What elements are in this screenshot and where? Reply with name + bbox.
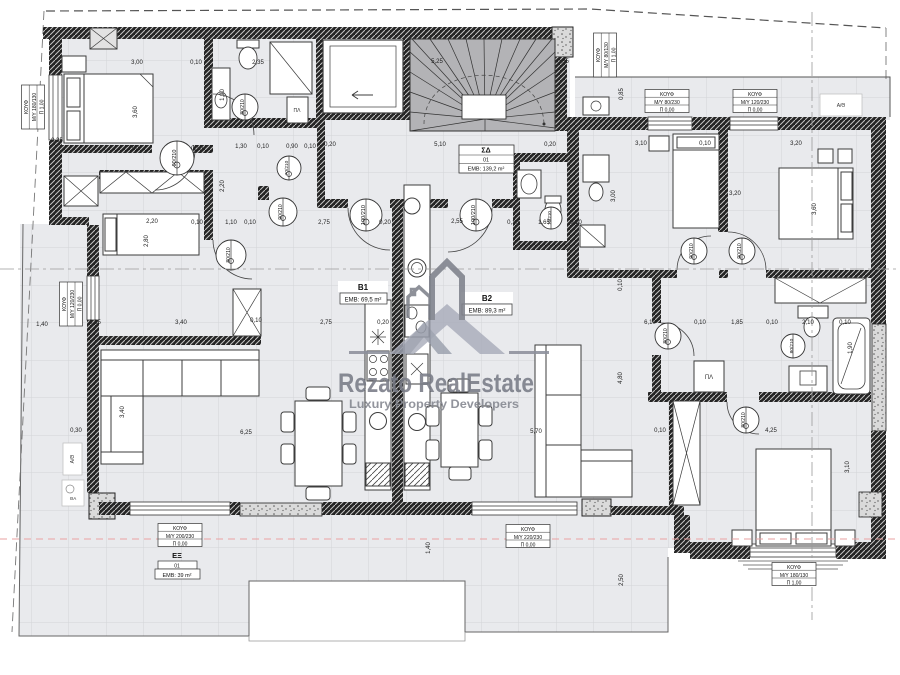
svg-text:ΣΔ: ΣΔ — [481, 148, 490, 155]
svg-text:01: 01 — [483, 158, 489, 164]
svg-text:Π 0,00: Π 0,00 — [748, 108, 763, 114]
svg-text:6,10: 6,10 — [644, 320, 656, 326]
svg-text:0,30: 0,30 — [70, 428, 82, 434]
svg-text:3,40: 3,40 — [175, 320, 187, 326]
svg-text:ΠΛ: ΠΛ — [705, 375, 713, 381]
svg-text:0,10: 0,10 — [694, 320, 706, 326]
svg-text:EMB: 69,5 m²: EMB: 69,5 m² — [345, 298, 382, 304]
svg-text:Π 1,00: Π 1,00 — [787, 581, 802, 587]
svg-text:0,10: 0,10 — [507, 220, 519, 226]
svg-text:Luxury Property Developers: Luxury Property Developers — [349, 397, 519, 411]
svg-text:2,35: 2,35 — [252, 60, 264, 66]
svg-text:2,20: 2,20 — [220, 180, 226, 192]
svg-text:0,10: 0,10 — [654, 428, 666, 434]
svg-text:0,10: 0,10 — [250, 318, 262, 324]
svg-text:ΠΛ: ΠΛ — [294, 108, 302, 114]
svg-text:70/210: 70/210 — [284, 160, 290, 175]
svg-text:3,00: 3,00 — [127, 146, 139, 152]
svg-text:80/210: 80/210 — [741, 412, 747, 428]
svg-text:1,85: 1,85 — [731, 320, 743, 326]
svg-text:0,35: 0,35 — [557, 59, 569, 65]
svg-text:Rezato RealEstate: Rezato RealEstate — [338, 368, 534, 398]
svg-text:2,50: 2,50 — [619, 574, 625, 586]
svg-text:3,20: 3,20 — [790, 141, 802, 147]
svg-text:Π 1,00: Π 1,00 — [612, 47, 618, 62]
svg-text:100/210: 100/210 — [471, 205, 477, 225]
svg-text:0,10: 0,10 — [190, 60, 202, 66]
svg-text:0,20: 0,20 — [544, 142, 556, 148]
svg-text:80/210: 80/210 — [240, 99, 246, 115]
svg-text:0,10: 0,10 — [699, 141, 711, 147]
svg-text:6,25: 6,25 — [240, 430, 252, 436]
svg-text:2,55: 2,55 — [451, 219, 463, 225]
svg-text:1,90: 1,90 — [220, 89, 226, 101]
svg-text:B1: B1 — [358, 283, 369, 292]
svg-text:5,70: 5,70 — [530, 429, 542, 435]
svg-text:5,25: 5,25 — [431, 59, 443, 65]
svg-text:1,40: 1,40 — [36, 322, 48, 328]
svg-text:1,90: 1,90 — [848, 342, 854, 354]
svg-text:EMB: 39 m²: EMB: 39 m² — [162, 573, 191, 579]
svg-text:1,30: 1,30 — [235, 144, 247, 150]
svg-text:0,10: 0,10 — [839, 320, 851, 326]
svg-text:100/210: 100/210 — [361, 205, 367, 225]
svg-text:EMB: 139,2 m²: EMB: 139,2 m² — [468, 167, 505, 173]
svg-text:Α/Θ: Α/Θ — [837, 103, 846, 109]
svg-text:0,20: 0,20 — [324, 142, 336, 148]
svg-text:90/210: 90/210 — [172, 150, 178, 167]
svg-text:B2: B2 — [482, 294, 493, 303]
svg-text:1,65: 1,65 — [538, 220, 550, 226]
svg-text:3,10: 3,10 — [635, 141, 647, 147]
svg-text:0,10: 0,10 — [191, 146, 203, 152]
svg-text:2,80: 2,80 — [144, 235, 150, 247]
svg-text:0,10: 0,10 — [766, 320, 778, 326]
svg-text:3,10: 3,10 — [845, 461, 851, 473]
svg-text:2,10: 2,10 — [802, 320, 814, 326]
svg-text:90/210: 90/210 — [278, 204, 284, 220]
svg-text:90/210: 90/210 — [689, 243, 695, 259]
svg-text:80/210: 80/210 — [789, 338, 795, 353]
svg-text:0,10: 0,10 — [570, 220, 582, 226]
svg-text:Α/Θ: Α/Θ — [70, 455, 76, 464]
svg-text:0,10: 0,10 — [244, 220, 256, 226]
svg-text:3,60: 3,60 — [133, 106, 139, 118]
svg-text:Π 0,00: Π 0,00 — [173, 542, 188, 548]
svg-text:1,40: 1,40 — [426, 542, 432, 554]
svg-text:Π 0,00: Π 0,00 — [521, 543, 536, 549]
svg-text:0,10: 0,10 — [618, 279, 624, 291]
svg-text:ΘΑ: ΘΑ — [70, 496, 76, 501]
svg-text:Π 0,00: Π 0,00 — [660, 108, 675, 114]
svg-text:0,10: 0,10 — [191, 220, 203, 226]
svg-text:EMB: 89,3 m²: EMB: 89,3 m² — [469, 309, 506, 315]
svg-text:Π 1,00: Π 1,00 — [40, 99, 46, 114]
svg-text:0,20: 0,20 — [377, 320, 389, 326]
svg-text:3,00: 3,00 — [611, 190, 617, 202]
svg-text:90/210: 90/210 — [737, 243, 743, 259]
svg-text:80/210: 80/210 — [663, 328, 669, 344]
svg-text:80/210: 80/210 — [226, 247, 232, 263]
svg-text:3,40: 3,40 — [120, 406, 126, 418]
svg-text:2,75: 2,75 — [320, 320, 332, 326]
svg-text:4,80: 4,80 — [618, 372, 624, 384]
svg-text:0,90: 0,90 — [286, 144, 298, 150]
svg-text:2,20: 2,20 — [146, 219, 158, 225]
svg-text:4,25: 4,25 — [765, 428, 777, 434]
svg-text:0,35: 0,35 — [89, 320, 101, 326]
svg-text:2,75: 2,75 — [318, 220, 330, 226]
svg-text:5,10: 5,10 — [434, 142, 446, 148]
svg-text:0,35: 0,35 — [51, 138, 63, 144]
svg-text:3,00: 3,00 — [131, 60, 143, 66]
svg-text:01: 01 — [174, 564, 180, 570]
svg-text:3,20: 3,20 — [729, 191, 741, 197]
svg-text:3,60: 3,60 — [812, 203, 818, 215]
svg-text:ΕΞ: ΕΞ — [172, 551, 182, 560]
svg-text:0,20: 0,20 — [379, 220, 391, 226]
svg-text:0,10: 0,10 — [257, 144, 269, 150]
svg-text:1,10: 1,10 — [225, 220, 237, 226]
svg-text:0,10: 0,10 — [304, 144, 316, 150]
svg-text:Π 0,00: Π 0,00 — [78, 296, 84, 311]
svg-text:0,85: 0,85 — [619, 88, 625, 100]
